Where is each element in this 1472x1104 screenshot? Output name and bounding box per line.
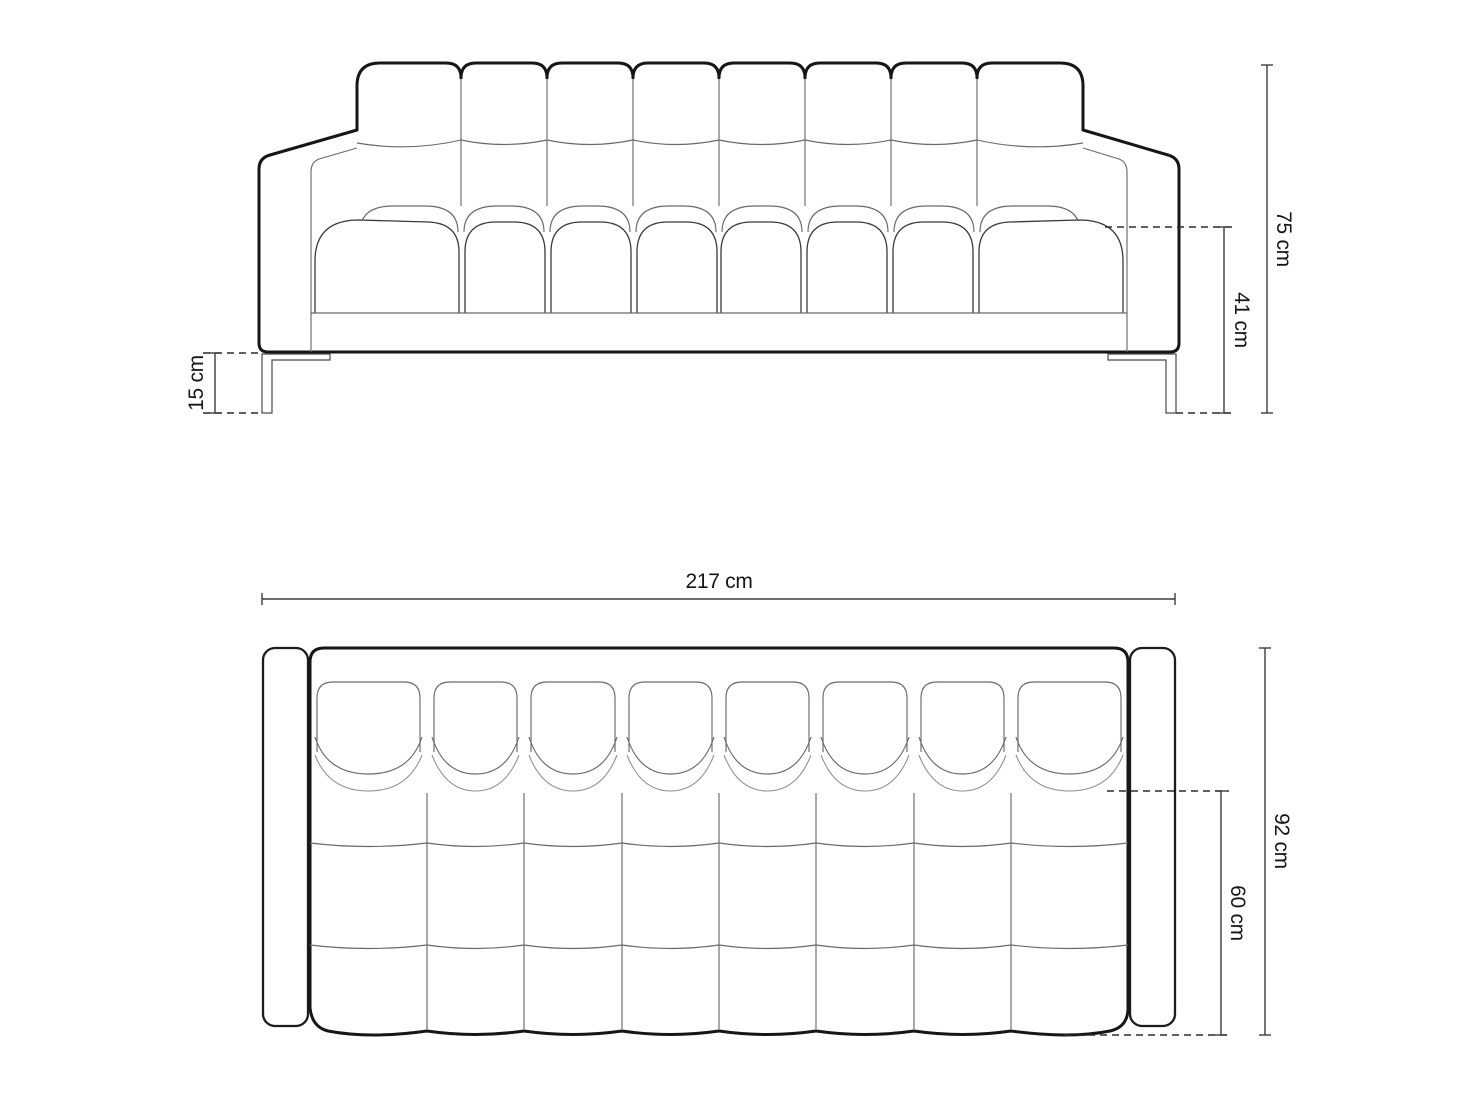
depth-dimension-label: 92 cm: [1270, 813, 1293, 869]
seat-cushion: [807, 222, 887, 313]
seat-cushion: [551, 222, 631, 313]
right-armrest-plan: [1130, 648, 1175, 1026]
seat-cushion: [893, 222, 973, 313]
dimension-depth-92: 92 cm: [1259, 648, 1293, 1035]
front-view: 75 cm 41 cm 15 cm: [185, 63, 1295, 413]
left-leg: [262, 354, 330, 413]
left-armrest-plan: [263, 648, 308, 1026]
sofa-dimension-diagram: 75 cm 41 cm 15 cm 217 cm: [0, 0, 1472, 1104]
seat-height-dimension-label: 41 cm: [1230, 292, 1253, 348]
rear-cushion-humps: [360, 206, 1080, 232]
backrest-top-outline: [357, 63, 1083, 130]
back-tuft-row-seam: [357, 140, 1083, 147]
seat-cushion: [315, 220, 459, 313]
seat-cushion: [721, 222, 801, 313]
dimension-height-75: 75 cm: [1261, 65, 1295, 413]
seat-depth-dimension-label: 60 cm: [1226, 885, 1249, 941]
seat-cushion: [979, 220, 1123, 313]
dimension-width-217: 217 cm: [262, 570, 1175, 605]
dimension-leg-height-15: 15 cm: [185, 353, 262, 413]
right-leg: [1108, 354, 1176, 413]
back-tuft-column-seams: [461, 80, 977, 206]
seat-cushion: [637, 222, 717, 313]
top-view: 217 cm: [262, 570, 1293, 1035]
technical-drawing-page: 75 cm 41 cm 15 cm 217 cm: [0, 0, 1472, 1104]
seat-cushion: [465, 222, 545, 313]
height-dimension-label: 75 cm: [1272, 211, 1295, 267]
width-dimension-label: 217 cm: [685, 570, 752, 593]
leg-height-dimension-label: 15 cm: [185, 355, 208, 411]
seat-cushions-front: [315, 220, 1123, 313]
